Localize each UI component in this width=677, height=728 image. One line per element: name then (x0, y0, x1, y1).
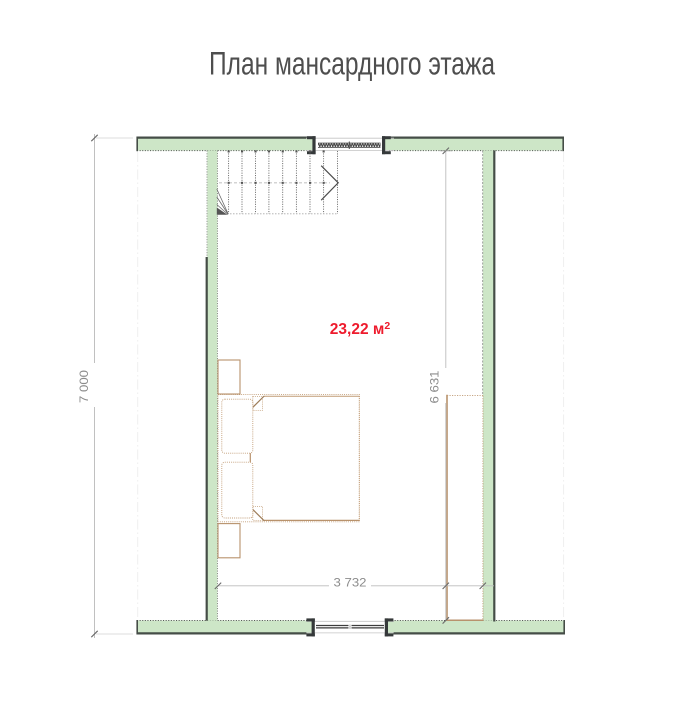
svg-text:3 732: 3 732 (334, 576, 367, 590)
svg-text:6 631: 6 631 (428, 370, 442, 403)
svg-text:7 000: 7 000 (77, 370, 91, 403)
svg-text:План мансардного этажа: План мансардного этажа (209, 46, 495, 82)
svg-text:23,22 м2: 23,22 м2 (330, 320, 391, 338)
